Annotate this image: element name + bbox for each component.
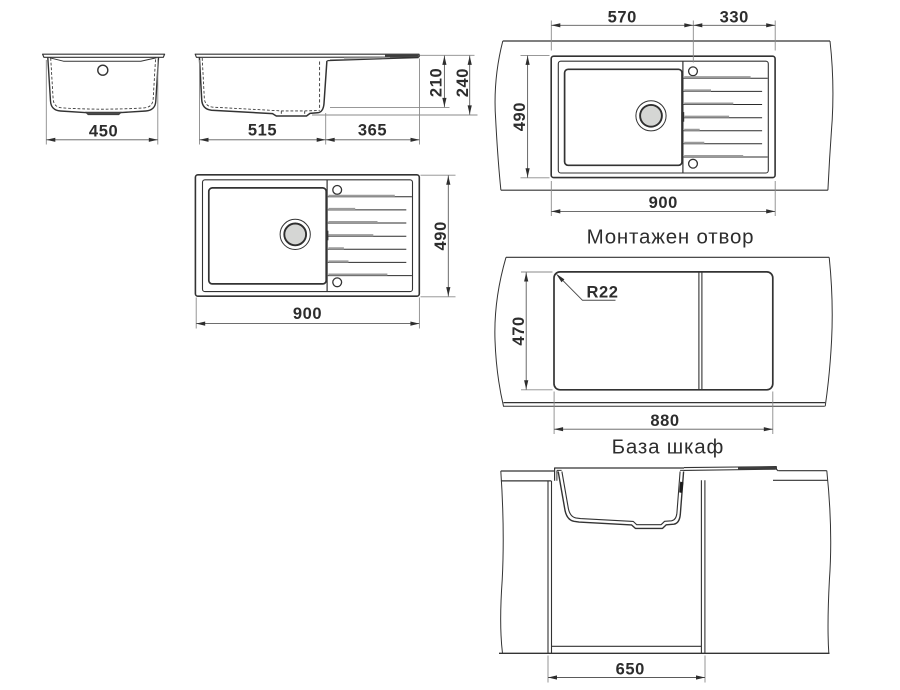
svg-text:Монтажен отвор: Монтажен отвор (587, 226, 755, 249)
svg-text:450: 450 (89, 123, 118, 141)
svg-text:490: 490 (432, 221, 450, 250)
svg-text:570: 570 (608, 8, 637, 26)
svg-text:330: 330 (720, 8, 749, 26)
svg-text:900: 900 (293, 305, 322, 323)
svg-text:R22: R22 (587, 283, 619, 301)
svg-text:470: 470 (510, 316, 528, 345)
svg-text:900: 900 (649, 194, 678, 212)
svg-text:База шкаф: База шкаф (612, 436, 724, 459)
svg-text:210: 210 (427, 68, 445, 97)
svg-text:490: 490 (511, 102, 529, 131)
svg-text:515: 515 (248, 121, 277, 139)
svg-text:240: 240 (454, 68, 472, 97)
svg-text:650: 650 (616, 661, 645, 679)
svg-text:880: 880 (650, 412, 679, 430)
svg-text:365: 365 (358, 121, 387, 139)
